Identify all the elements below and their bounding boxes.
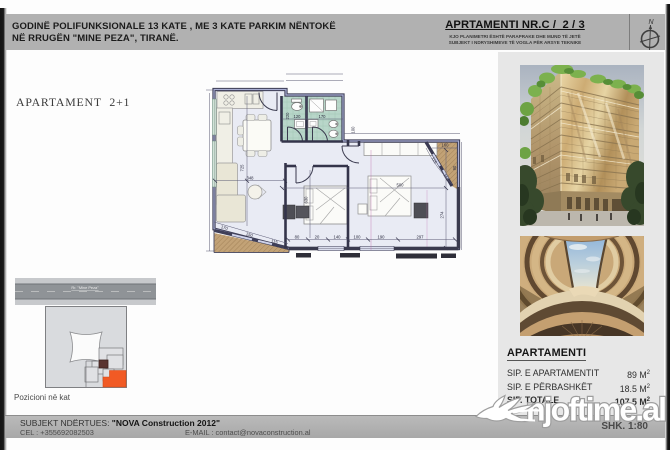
svg-text:220: 220 <box>285 112 290 120</box>
svg-text:20: 20 <box>315 235 320 240</box>
svg-text:80: 80 <box>295 235 300 240</box>
svg-text:120: 120 <box>294 114 302 119</box>
svg-text:630: 630 <box>304 196 309 204</box>
svg-text:Rr. "Mine Peza": Rr. "Mine Peza" <box>71 285 99 290</box>
svg-text:297: 297 <box>417 235 425 240</box>
svg-text:140: 140 <box>334 235 342 240</box>
svg-text:90: 90 <box>452 165 457 170</box>
svg-text:160: 160 <box>442 143 450 148</box>
svg-text:274: 274 <box>440 211 445 219</box>
svg-text:100: 100 <box>354 235 362 240</box>
svg-text:N: N <box>648 19 654 26</box>
svg-text:725: 725 <box>240 164 245 172</box>
svg-text:170: 170 <box>319 114 327 119</box>
svg-text:100: 100 <box>351 126 356 134</box>
svg-text:190: 190 <box>378 235 386 240</box>
svg-text:500: 500 <box>397 183 405 188</box>
svg-text:348: 348 <box>247 176 255 181</box>
